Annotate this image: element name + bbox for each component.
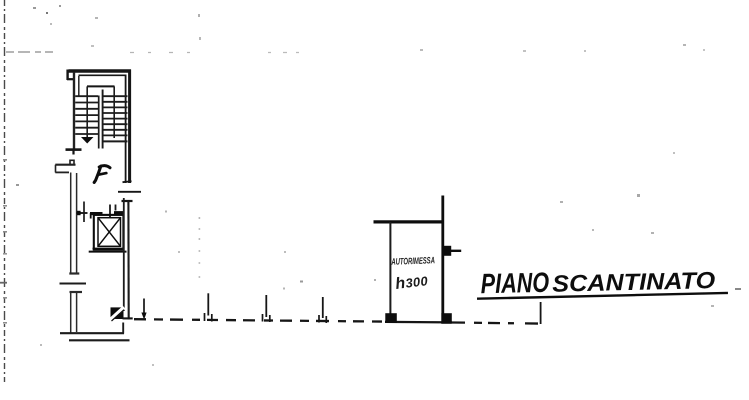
svg-text:AUTORIMESSA: AUTORIMESSA [391, 255, 436, 267]
svg-text:SCANTINATO: SCANTINATO [552, 267, 716, 297]
svg-text:PIANO: PIANO [480, 267, 549, 300]
